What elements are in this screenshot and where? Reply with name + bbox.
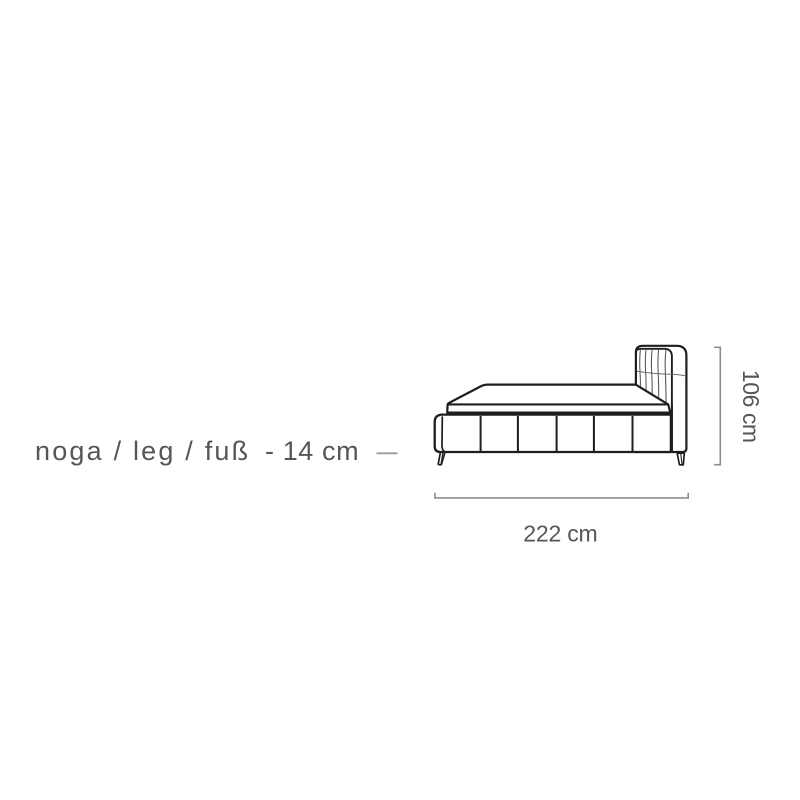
svg-text:106 cm: 106 cm [738,370,764,443]
svg-text:noga / leg / fuß: noga / leg / fuß [35,436,250,466]
svg-text:222 cm: 222 cm [523,520,597,546]
svg-text:- 14 cm: - 14 cm [265,436,359,466]
